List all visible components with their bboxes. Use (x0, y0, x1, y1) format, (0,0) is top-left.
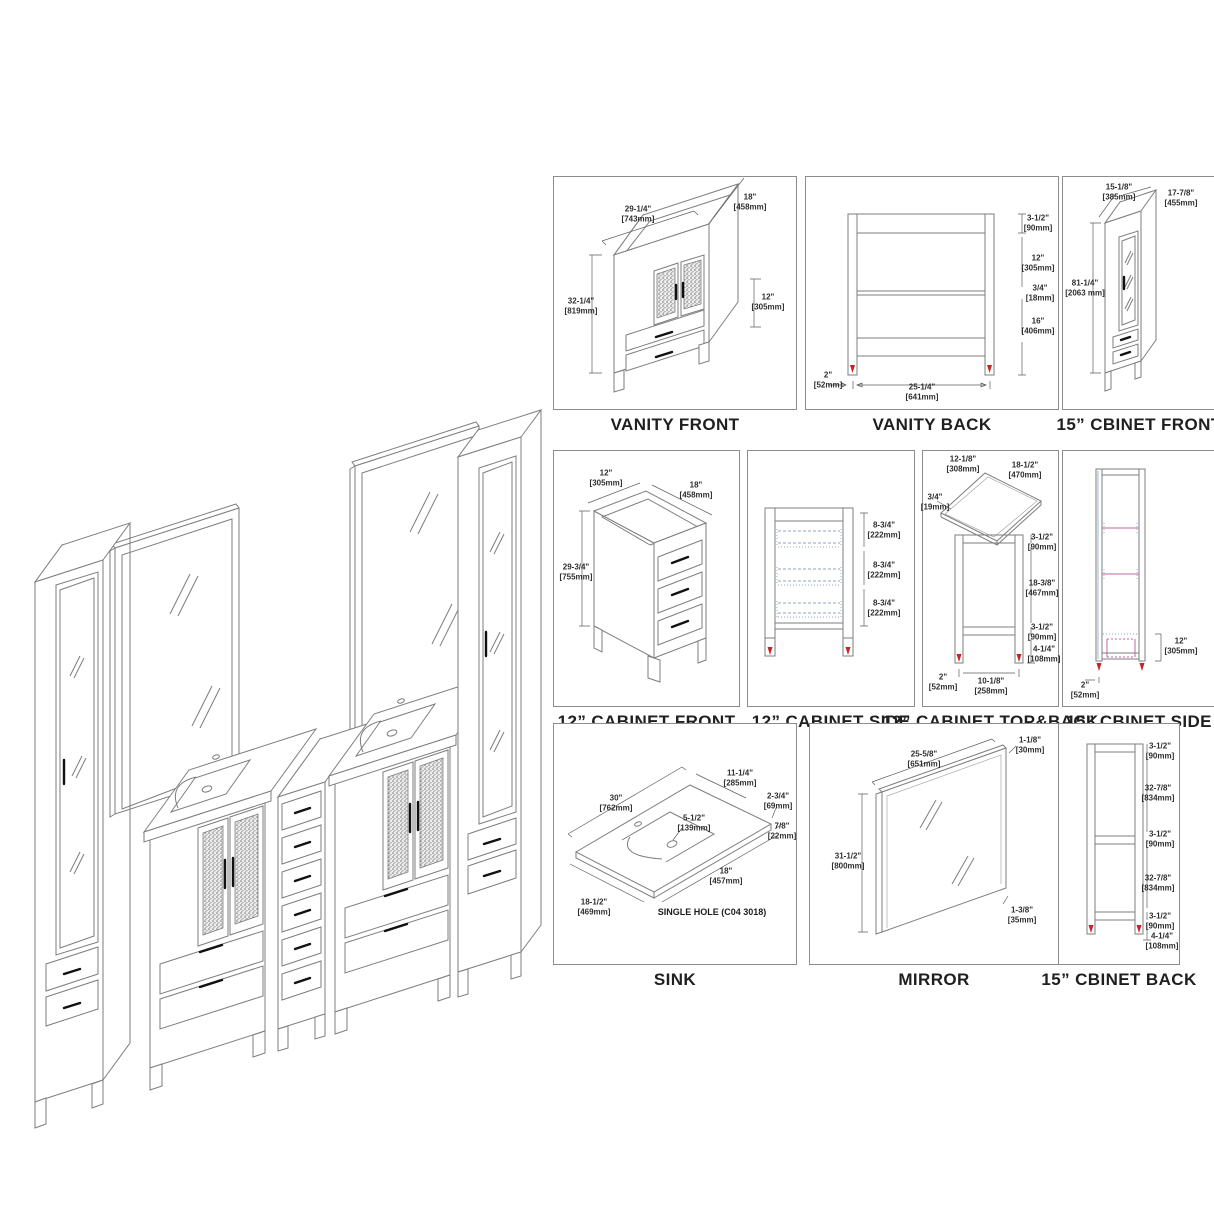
dim-c12t-railtop: 3-1/2"[90mm] (1028, 533, 1056, 554)
dim-c12s-bay2: 8-3/4"[222mm] (868, 561, 901, 582)
dim-vanity-width: 29-1/4"[743mm] (622, 205, 655, 226)
panel-vanity-back: 3-1/2"[90mm] 12"[305mm] 3/4"[18mm] 16"[4… (805, 176, 1059, 410)
panel-sink: 30"[762mm] 11-1/4"[285mm] 2-3/4"[69mm] 7… (553, 723, 797, 965)
vanity-back-drawing (806, 177, 1058, 409)
overview-tall-cabinet-right (458, 410, 541, 997)
panel-cbinet15-back: 3-1/2"[90mm] 32-7/8"[834mm] 3-1/2"[90mm]… (1058, 723, 1180, 965)
panel-caption: 15” CBINET BACK (1041, 970, 1196, 990)
dim-sink-front: 18"[457mm] (710, 867, 743, 888)
dim-c15b-rail3: 3-1/2"[90mm] (1146, 912, 1174, 933)
dim-c15f-height: 81-1/4"[2063 mm] (1065, 279, 1105, 300)
dim-c12f-height: 29-3/4"[755mm] (560, 563, 593, 584)
dim-mirror-frame: 1-3/8"[35mm] (1008, 906, 1036, 927)
panel-mirror: 25-5/8"[651mm] 1-1/8"[30mm] 31-1/2"[800m… (809, 723, 1059, 965)
dim-c12t-leg: 2"[52mm] (929, 673, 957, 694)
dim-c15f-depth: 17-7/8"[455mm] (1165, 189, 1198, 210)
dim-sink-width: 30"[762mm] (600, 794, 633, 815)
dim-mirror-thick: 1-1/8"[30mm] (1016, 736, 1044, 757)
isometric-overview (20, 252, 548, 1152)
dim-c12t-span: 10-1/8"[258mm] (975, 677, 1008, 698)
dim-c12t-raillow: 3-1/2"[90mm] (1028, 623, 1056, 644)
dim-c15f-width: 15-1/8"[385mm] (1103, 183, 1136, 204)
dim-c15b-panel2: 32-7/8"[834mm] (1142, 874, 1175, 895)
dim-vanity-drawer: 12"[305mm] (752, 293, 785, 314)
sink-drawing (554, 724, 796, 964)
dim-c15b-foot: 4-1/4"[108mm] (1146, 932, 1179, 953)
panel-vanity-front: 29-1/4"[743mm] 18"[458mm] 32-1/4"[819mm]… (553, 176, 797, 410)
dim-c12t-topw: 12-1/8"[308mm] (947, 455, 980, 476)
dim-back-midrail: 3/4"[18mm] (1026, 284, 1054, 305)
dim-c12t-foot: 4-1/4"[108mm] (1028, 645, 1061, 666)
dim-c12t-mid: 18-3/8"[467mm] (1026, 579, 1059, 600)
dim-c12f-depth: 18"[458mm] (680, 481, 713, 502)
dim-mirror-width: 25-5/8"[651mm] (908, 750, 941, 771)
dim-back-span: 25-1/4"[641mm] (906, 383, 939, 404)
dim-mirror-height: 31-1/2"[800mm] (832, 852, 865, 873)
dim-c15b-rail2: 3-1/2"[90mm] (1146, 830, 1174, 851)
dim-sink-thick: 7/8"[22mm] (768, 822, 796, 843)
panel-cabinet12-side: 8-3/4"[222mm] 8-3/4"[222mm] 8-3/4"[222mm… (747, 450, 915, 707)
panel-caption: VANITY BACK (872, 415, 991, 435)
dim-c12t-topt: 3/4"[19mm] (921, 493, 949, 514)
panel-caption: SINK (654, 970, 696, 990)
cbinet15-side-drawing (1063, 451, 1214, 706)
dim-vanity-depth: 18"[458mm] (734, 193, 767, 214)
dim-c12t-topd: 18-1/2"[470mm] (1009, 461, 1042, 482)
dim-back-toprail: 3-1/2"[90mm] (1024, 214, 1052, 235)
dim-c12s-bay3: 8-3/4"[222mm] (868, 599, 901, 620)
dim-sink-basinw: 11-1/4"[285mm] (724, 769, 757, 790)
dim-sink-basind: 5-1/2"[139mm] (678, 814, 711, 835)
panel-caption: MIRROR (898, 970, 969, 990)
dim-back-leg: 2"[52mm] (814, 371, 842, 392)
dim-c12s-bay1: 8-3/4"[222mm] (868, 521, 901, 542)
dimension-sheet: 29-1/4"[743mm] 18"[458mm] 32-1/4"[819mm]… (0, 0, 1214, 1214)
dim-sink-depth: 18-1/2"[469mm] (578, 898, 611, 919)
panel-cbinet15-front: 15-1/8"[385mm] 17-7/8"[455mm] 81-1/4"[20… (1062, 176, 1214, 410)
dim-back-lower: 16"[406mm] (1022, 317, 1055, 338)
panel-cbinet15-side: 12"[305mm] 2"[52mm] 15” CBINET SIDE (1062, 450, 1214, 707)
dim-c15s-leg: 2"[52mm] (1071, 681, 1099, 702)
dim-c15b-rail1: 3-1/2"[90mm] (1146, 742, 1174, 763)
panel-cabinet12-topback: 12-1/8"[308mm] 18-1/2"[470mm] 3/4"[19mm]… (922, 450, 1059, 707)
sink-note: SINGLE HOLE (C04 3018) (658, 907, 767, 917)
dim-back-upper: 12"[305mm] (1022, 254, 1055, 275)
dim-sink-edge: 2-3/4"[69mm] (764, 792, 792, 813)
dim-vanity-height: 32-1/4"[819mm] (565, 297, 598, 318)
dim-c15s-drawer: 12"[305mm] (1165, 637, 1198, 658)
dim-c12f-width: 12"[305mm] (590, 469, 623, 490)
dim-c15b-panel1: 32-7/8"[834mm] (1142, 784, 1175, 805)
panel-caption: 15” CBINET FRONT (1056, 415, 1214, 435)
panel-cabinet12-front: 12"[305mm] 18"[458mm] 29-3/4"[755mm] 12”… (553, 450, 740, 707)
panel-caption: VANITY FRONT (611, 415, 740, 435)
